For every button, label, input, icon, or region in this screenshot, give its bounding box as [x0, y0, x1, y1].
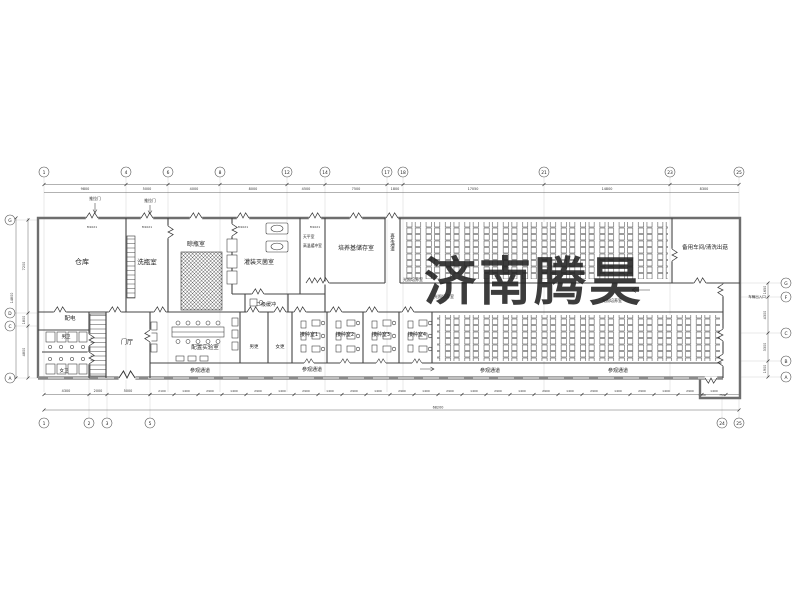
dim-bottom-small: 2900: [350, 389, 358, 393]
grid-bubble-label: 25: [736, 170, 742, 176]
dim-right: 3300: [763, 343, 767, 352]
grid-bubbles-top: 1 4 6 8 12 14 17 18 21 23 25: [39, 167, 744, 177]
dim-top: 4500: [302, 187, 311, 191]
door-tag: M1021: [87, 225, 97, 229]
corridor-label-visitor: 参观通道: [190, 367, 210, 374]
door-tag: M1021: [238, 225, 248, 229]
room-label-spare-workshop: 备用车间/清洗出菇: [682, 243, 728, 251]
dim-bottom-small: 1400: [326, 389, 334, 393]
room-label-bottle-wash: 洗瓶室: [137, 257, 157, 266]
dim-right: 1900: [763, 365, 767, 374]
room-label-inoc3: 接种室3: [372, 331, 390, 338]
dim-top: 17050: [468, 187, 479, 191]
room-label-buffer2: 二级缓冲: [256, 301, 276, 308]
autoclave: [266, 241, 288, 252]
grid-bubble-label: 17: [384, 170, 390, 176]
shelf-ladder: [127, 236, 135, 298]
dim-vestibule: 750: [719, 393, 725, 397]
filling-machine: [227, 255, 237, 268]
floor-plan-drawing: 9800 5000 4000 8000 4500 7500 1800 17050…: [0, 0, 800, 600]
dim-top: 14800: [602, 187, 613, 191]
dim-left: 1800: [22, 316, 26, 325]
dim-bottom-small: 1400: [374, 389, 382, 393]
balance-room-label: 天平室: [303, 234, 315, 239]
sliding-door-label: 推拉门: [89, 196, 101, 201]
hatch-elements: [90, 236, 222, 376]
dim-bottom-small: 2900: [638, 389, 646, 393]
drying-platform-hatch: [181, 252, 222, 310]
room-label-bottle-dry: 晾瓶室: [187, 240, 205, 248]
dim-top: 5000: [143, 187, 152, 191]
dim-bottom-small: 2100: [158, 389, 166, 393]
room-label-inoc1: 接种室1: [300, 331, 318, 338]
room-label-medium-storage: 培养基储存室: [338, 244, 374, 252]
staircase: [90, 314, 106, 376]
grid-bubble-label: C: [8, 324, 11, 330]
lab-bench: [172, 321, 224, 344]
corridor-label-visitor: 参观通道: [608, 367, 628, 374]
grid-bubble-label: 14: [322, 170, 328, 176]
room-label-wc-men: 男卫: [62, 334, 71, 340]
dim-left-total: 14800: [10, 293, 14, 304]
lab-side-equipment: [151, 318, 238, 361]
dim-bottom: 2000: [94, 389, 103, 393]
dim-bottom-small: 2900: [302, 389, 310, 393]
dim-bottom-small: 1400: [422, 389, 430, 393]
dim-bottom: 4300: [62, 389, 71, 393]
grid-bubble-label: 3: [106, 421, 109, 427]
grid-bubble-label: 6: [167, 170, 170, 176]
room-label-prep-lab: 配置实验室: [191, 343, 219, 351]
room-label-inoc4: 接种室4: [408, 331, 426, 338]
grid-bubble-label: 18: [400, 170, 406, 176]
room-label-warehouse: 仓库: [75, 257, 89, 266]
room-label-change-men: 男更: [250, 344, 259, 350]
dim-right: 1650: [763, 286, 767, 295]
corridor-label-visitor: 参观通道: [302, 366, 322, 373]
filling-machine: [227, 271, 237, 284]
grid-bubble-label: 25: [736, 421, 742, 427]
room-label-filling: 灌装灭菌室: [244, 258, 274, 266]
door-tag: M1021: [142, 225, 152, 229]
autoclave: [266, 223, 288, 234]
grid-bubble-label: B: [784, 359, 787, 365]
grid-bubbles-right: G F C B A: [781, 278, 791, 382]
dim-bottom: 5000: [124, 389, 133, 393]
dim-bottom-small: 2900: [206, 389, 214, 393]
room-label-lobby: 门厅: [121, 338, 133, 346]
dim-bottom-small: 2900: [590, 389, 598, 393]
door-tag: M1021: [310, 225, 320, 229]
grid-bubble-label: A: [784, 375, 787, 381]
dim-bottom-small: 2900: [542, 389, 550, 393]
dim-left: 4800: [22, 348, 26, 357]
dim-bottom-small: 1400: [230, 389, 238, 393]
grid-bubble-label: 12: [284, 170, 290, 176]
dim-bottom-small-row: 2100140029001400290014002900140029001400…: [149, 389, 728, 396]
grid-bubble-label: A: [8, 376, 11, 382]
dim-bottom-small: 1400: [662, 389, 670, 393]
room-label-power: 配电: [64, 314, 76, 322]
grid-bubble-label: 2: [88, 421, 91, 427]
grid-bubble-label: 1: [43, 421, 46, 427]
vehicle-entry-label: 车辆出入口: [748, 294, 766, 299]
room-label-change-women: 女更: [276, 343, 285, 350]
dim-top: 8000: [249, 187, 258, 191]
dim-total: 68200: [433, 406, 444, 410]
dim-left: 7200: [22, 262, 26, 271]
dim-bottom-small: 2900: [398, 389, 406, 393]
grid-bubble-label: 5: [149, 421, 152, 427]
corridor-label-visitor: 参观通道: [480, 367, 500, 374]
dim-bottom-small: 1400: [566, 389, 574, 393]
grid-bubble-label: 23: [667, 170, 673, 176]
filling-machine: [227, 239, 237, 252]
grid-bubble-label: 21: [541, 170, 547, 176]
dim-bottom-small: 2900: [254, 389, 262, 393]
room-label-wc-women: 女卫: [60, 367, 69, 374]
dim-top: 8300: [700, 187, 709, 191]
grid-bubble-label: 8: [219, 170, 222, 176]
dim-top: 4000: [190, 187, 199, 191]
dim-bottom-small: 1400: [710, 389, 718, 393]
grid-bubble-label: G: [784, 281, 788, 287]
room-label-inoc2: 接种室2: [336, 331, 354, 338]
dim-bottom-small: 2900: [446, 389, 454, 393]
dim-bottom-small: 2900: [494, 389, 502, 393]
rack-area-lower: [437, 315, 720, 361]
dim-bottom-small: 1400: [614, 389, 622, 393]
dim-top: 1800: [391, 187, 400, 191]
grid-bubble-label: 1: [43, 170, 46, 176]
dim-bottom-small: 1400: [278, 389, 286, 393]
dim-top: 9800: [81, 187, 90, 191]
grid-bubbles-bottom: 1 2 3 5 24 25: [39, 418, 744, 428]
hot-buffer-label: 高温缓冲室: [303, 243, 322, 248]
grid-bubble-label: 4: [125, 170, 128, 176]
sliding-door-label: 推拉门: [144, 198, 156, 203]
grid-bubble-label: G: [8, 218, 12, 224]
drawing-canvas: 9800 5000 4000 8000 4500 7500 1800 17050…: [0, 0, 800, 600]
grid-bubble-label: C: [784, 331, 787, 337]
grid-bubble-label: 24: [719, 421, 725, 427]
dim-bottom-small: 1400: [518, 389, 526, 393]
watermark-text: 济南腾昊: [424, 253, 644, 313]
dim-right: 4300: [763, 311, 767, 320]
dim-bottom-small: 1400: [470, 389, 478, 393]
dim-top: 7500: [352, 187, 361, 191]
dim-bottom-small: 2900: [686, 389, 694, 393]
dim-bottom-small: 1400: [182, 389, 190, 393]
corridor-label-regen: 再生通道: [390, 233, 395, 253]
room-label-light-room: 光照培养室: [403, 276, 423, 282]
